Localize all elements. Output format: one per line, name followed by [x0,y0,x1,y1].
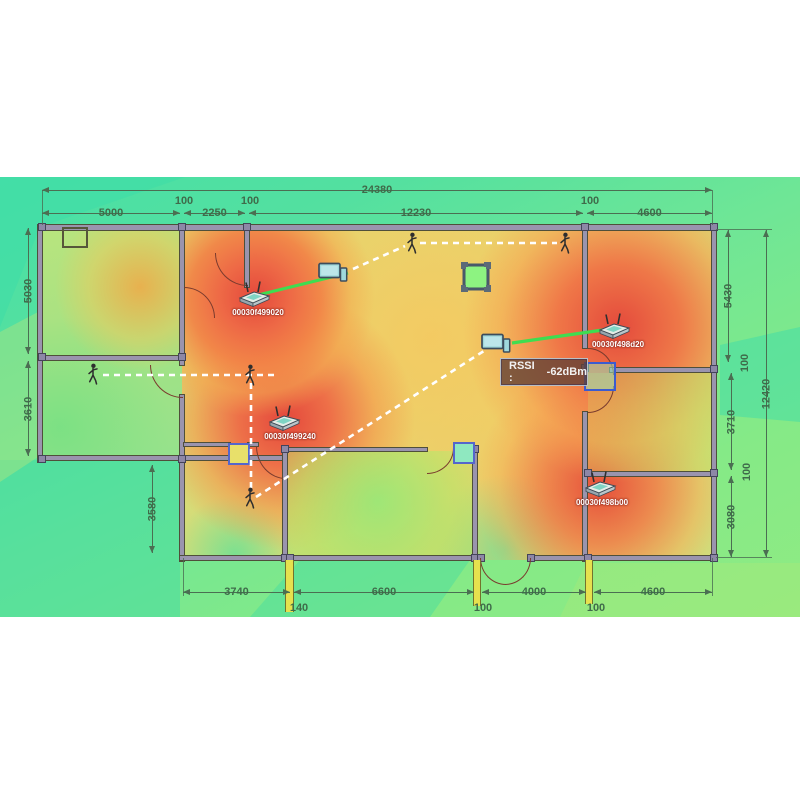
wall-segment [184,443,230,446]
dimension-label: 5430 [724,284,735,308]
dimension-bot_b: 140 [290,602,308,614]
dimension-label: 4600 [637,208,661,219]
wall-junction-post [179,456,185,462]
dimension-top_c: 2250 [184,213,245,214]
dimension-right_a: 5430 [728,230,729,362]
dimension-left_b: 3610 [28,361,29,456]
router-icon [596,313,632,339]
walking-person-5[interactable] [243,487,257,509]
person-icon [558,232,572,254]
dimension-label: 3710 [727,409,738,433]
wall-junction-post [179,354,185,360]
dimension-label: 3610 [24,396,35,420]
person-icon [405,232,419,254]
table-icon [461,262,491,292]
laptop-icon [480,332,512,354]
wall-junction-post [711,470,717,476]
dimension-right_e: 3080 [731,476,732,557]
rssi-value: -62dBm [547,366,587,378]
wall-segment [528,556,716,560]
wall-segment [180,395,184,561]
wall-segment [287,448,427,451]
dimension-label: 3080 [727,504,738,528]
column-post-corridor [228,443,250,465]
router-icon [582,471,618,497]
dimension-right_d: 100 [741,463,753,481]
dimension-label: 4600 [641,587,665,598]
wall-segment [38,225,716,230]
walking-person-1[interactable] [405,232,419,254]
laptop-client-2[interactable] [480,332,512,354]
dimension-left_a: 5030 [28,228,29,354]
wall-segment [38,356,184,360]
laptop-icon [317,261,349,283]
dimension-bot_a: 3740 [183,592,290,593]
wifi-planner-canvas: 2438050002250122304600100100100503036103… [0,0,800,800]
wall-junction-post [244,224,250,230]
laptop-client-1[interactable] [317,261,349,283]
router-icon [266,405,302,431]
access-point-2[interactable]: 00030f498d20 [596,313,636,341]
access-point-1[interactable]: 00030f499020 [236,281,276,309]
extension-line [712,190,713,225]
dimension-label: 3580 [148,497,159,521]
entrance-door-left-leaf [480,558,506,585]
dimension-bot_f: 100 [587,602,605,614]
dimension-top_e: 12230 [249,213,583,214]
router-icon [236,281,272,307]
person-icon [243,487,257,509]
dimension-top_d: 100 [241,195,259,207]
dimension-label: 6600 [372,587,396,598]
access-point-4[interactable]: 00030f498b00 [582,471,622,499]
signal-heatmap-layer [0,177,800,617]
dimension-left_c: 3580 [152,465,153,553]
dimension-top_b: 100 [175,195,193,207]
dimension-bot_e: 4000 [482,592,586,593]
ap-mac-label: 00030f499020 [232,308,284,317]
dimension-right_total: 12420 [766,230,767,557]
walking-person-3[interactable] [86,363,100,385]
wall-segment [610,368,716,372]
dimension-top_f: 100 [581,195,599,207]
extension-line [716,557,772,558]
wall-stub-c [585,560,593,604]
rssi-tooltip: RSSI : -62dBm [500,358,588,386]
wall-junction-post [39,354,45,360]
wall-junction-post [582,224,588,230]
dimension-top_g: 4600 [587,213,712,214]
walking-person-4[interactable] [243,364,257,386]
extension-line [42,190,43,225]
person-icon [243,364,257,386]
selected-door-highlight [584,362,616,391]
ap-mac-label: 00030f498d20 [592,340,644,349]
dimension-label: 2250 [202,208,226,219]
dimension-top_a: 5000 [42,213,180,214]
wall-segment [180,556,480,560]
wall-junction-post [179,224,185,230]
window-topleft-room [62,227,88,248]
person-icon [86,363,100,385]
dimension-top_total: 24380 [42,190,712,191]
wall-segment [473,448,477,557]
wall-segment [712,225,716,560]
dimension-bot_g: 4600 [594,592,712,593]
dimension-label: 5030 [24,279,35,303]
dimension-right_b: 100 [739,354,751,372]
dimension-bot_c: 6600 [294,592,474,593]
dimension-label: 12230 [401,208,432,219]
walking-person-2[interactable] [558,232,572,254]
table[interactable] [461,262,491,292]
wall-segment [38,225,42,462]
wall-junction-post [39,456,45,462]
extension-line [712,558,713,596]
wall-junction-post [711,366,717,372]
dimension-label: 5000 [99,208,123,219]
dimension-right_c: 3710 [731,373,732,470]
ap-mac-label: 00030f499240 [264,432,316,441]
dimension-bot_d: 100 [474,602,492,614]
dimension-label: 3740 [224,587,248,598]
dimension-label: 12420 [762,378,773,409]
access-point-3[interactable]: 00030f499240 [266,405,306,433]
dimension-label: 24380 [362,185,393,196]
wall-segment [583,225,587,348]
dimension-label: 4000 [522,587,546,598]
column-post-conference [453,442,475,464]
wall-stub-b [473,560,481,606]
entrance-door-right-leaf [505,558,531,585]
ap-mac-label: 00030f498b00 [576,498,628,507]
floorplan-heatmap[interactable]: 2438050002250122304600100100100503036103… [0,177,800,617]
rssi-label: RSSI : [509,360,540,384]
